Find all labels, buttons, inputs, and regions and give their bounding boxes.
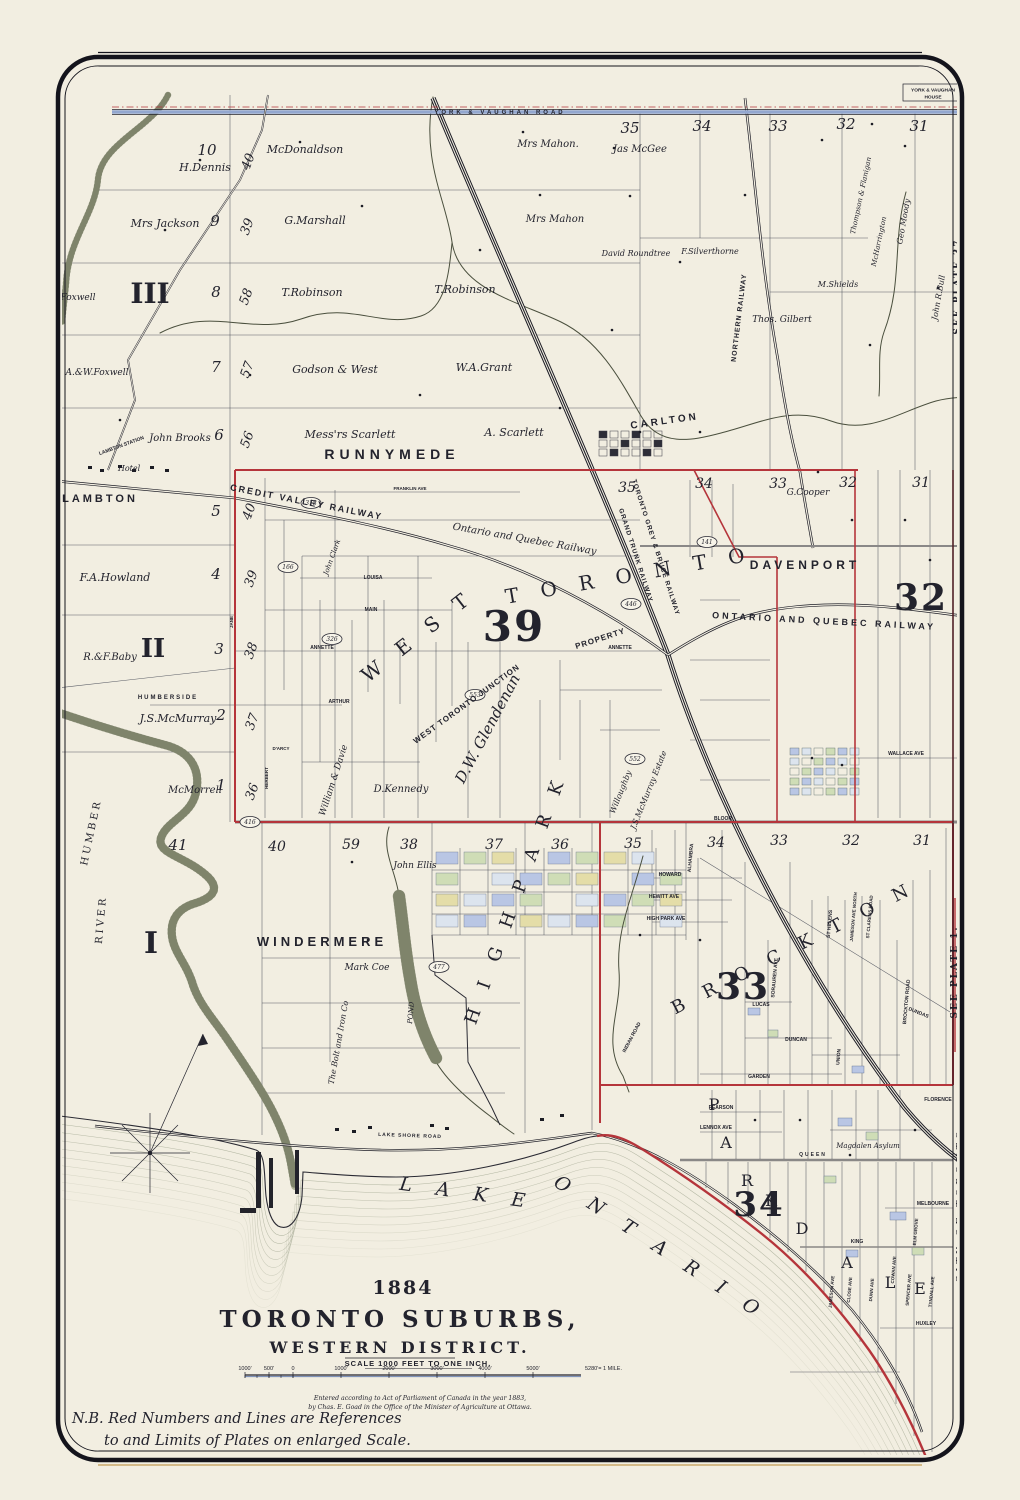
building-dot — [849, 1154, 852, 1157]
map-label: M.Shields — [817, 280, 858, 289]
building — [352, 1130, 356, 1133]
map-label: HERBERT — [264, 767, 269, 789]
map-label: John Brooks — [147, 433, 210, 444]
windermere-block — [632, 852, 654, 864]
map-label: 35 — [620, 119, 639, 137]
windermere-block — [604, 852, 626, 864]
map-label: YORK & VAUGHAN ROAD — [434, 110, 565, 116]
map-label: A — [840, 1253, 853, 1272]
map-label: Mess'rs Scarlett — [304, 428, 396, 441]
building-dot — [679, 261, 682, 264]
windermere-block — [576, 873, 598, 885]
map-label: 5 — [211, 502, 221, 520]
davenport-block — [838, 788, 847, 795]
map-label: 10 — [197, 141, 217, 159]
map-label: F.Silverthorne — [680, 247, 739, 256]
map-label: QUEEN — [799, 1152, 827, 1158]
building-dot — [841, 764, 844, 767]
windermere-block — [576, 852, 598, 864]
building-dot — [539, 194, 542, 197]
map-label: LAMBTON — [62, 493, 138, 505]
map-label: McDonaldson — [266, 143, 343, 156]
map-label: K — [765, 1191, 778, 1210]
building-dot — [929, 559, 932, 562]
map-label: JANE — [229, 616, 234, 628]
building-dot — [904, 145, 907, 148]
map-label: 37 — [485, 837, 503, 853]
map-label: 39 — [483, 602, 545, 651]
map-label: D.Kennedy — [373, 784, 429, 795]
map-label: DAVENPORT — [750, 558, 860, 572]
davenport-block — [802, 788, 811, 795]
map-label: LUCAS — [752, 1002, 770, 1008]
building-dot — [851, 519, 854, 522]
scale-tick-label: 1000' — [238, 1366, 251, 1372]
map-label: 31 — [913, 833, 931, 849]
map-label: A — [719, 1133, 732, 1152]
building — [150, 466, 154, 469]
windermere-block — [604, 894, 626, 906]
town-block — [824, 1176, 836, 1183]
carlton-block — [654, 440, 662, 447]
map-label: 32 — [839, 475, 857, 491]
building-dot — [754, 1119, 757, 1122]
windermere-block — [436, 873, 458, 885]
pier — [295, 1150, 299, 1194]
building-dot — [869, 344, 872, 347]
map-label: T.Robinson — [434, 283, 495, 296]
map-label: Magdalen Asylum — [835, 1142, 900, 1150]
davenport-block — [814, 768, 823, 775]
davenport-block — [802, 748, 811, 755]
map-label: 9 — [210, 212, 220, 230]
map-label: Godson & West — [292, 363, 378, 376]
building-dot — [119, 419, 122, 422]
map-label: 2 — [215, 706, 226, 724]
building-dot — [629, 195, 632, 198]
windermere-block — [464, 894, 486, 906]
map-label: KING — [851, 1239, 864, 1245]
windermere-block — [520, 915, 542, 927]
building-dot — [611, 329, 614, 332]
carlton-block — [621, 440, 629, 447]
carlton-block — [599, 431, 607, 438]
scale-tick-label: 3000' — [430, 1366, 443, 1372]
map-label: F.A.Howland — [79, 571, 151, 584]
map-label: 33 — [769, 476, 787, 492]
building-dot — [479, 249, 482, 252]
map-label: MELBOURNE — [917, 1201, 950, 1207]
windermere-block — [436, 915, 458, 927]
building-dot — [639, 431, 642, 434]
imprint-line2: by Chas. E. Goad in the Office of the Mi… — [308, 1404, 532, 1411]
map-label: J.S.McMurray — [138, 712, 218, 725]
building-dot — [351, 861, 354, 864]
map-label: P — [709, 1095, 720, 1114]
map-label: LENNOX AVE — [700, 1125, 733, 1131]
house-label-1: YORK & VAUGHAN — [911, 88, 955, 94]
building — [430, 1124, 434, 1127]
map-label: ANNETTE — [608, 645, 632, 651]
map-label: 32 — [836, 115, 855, 133]
davenport-block — [802, 778, 811, 785]
map-label: ARTHUR — [328, 699, 349, 705]
map-label: 4 — [210, 565, 221, 583]
map-label: FLORENCE — [924, 1097, 952, 1103]
toronto-suburbs-map: YORK & VAUGHAN HOUSE 4461663265535524164… — [0, 0, 1020, 1500]
map-label: 33 — [770, 833, 788, 849]
map-label: 41 — [167, 836, 187, 854]
building — [335, 1128, 339, 1131]
building-dot — [799, 1119, 802, 1122]
building — [165, 469, 169, 472]
map-label: 40 — [267, 839, 286, 855]
carlton-block — [610, 449, 618, 456]
map-label: I — [144, 926, 158, 961]
windermere-block — [464, 852, 486, 864]
lot-badge-number: 446 — [624, 601, 637, 608]
windermere-block — [548, 852, 570, 864]
town-block — [748, 1008, 760, 1015]
building-dot — [821, 139, 824, 142]
map-label: 3 — [214, 640, 224, 658]
map-label: Mrs Mahon — [525, 214, 584, 225]
map-label: Mark Coe — [344, 963, 390, 973]
davenport-block — [790, 788, 799, 795]
building-dot — [699, 939, 702, 942]
house-label-2: HOUSE — [924, 95, 942, 101]
map-label: D — [796, 1219, 809, 1238]
map-label: 8 — [211, 283, 221, 301]
map-label: 31 — [909, 117, 928, 135]
map-label: WALLACE AVE — [888, 751, 924, 757]
building-dot — [871, 123, 874, 126]
map-label: 1 — [216, 776, 226, 794]
map-label: David Roundtree — [601, 249, 671, 258]
map-label: Thos. Gilbert — [752, 315, 812, 325]
building — [540, 1118, 544, 1121]
building — [560, 1114, 564, 1117]
building-dot — [559, 407, 562, 410]
map-label: R.&F.Baby — [82, 652, 137, 663]
map-label: DUNCAN — [785, 1037, 807, 1043]
davenport-block — [790, 778, 799, 785]
map-label: WINDERMERE — [257, 934, 387, 949]
davenport-block — [838, 748, 847, 755]
lot-badge-number: 141 — [701, 539, 712, 546]
lot-badge-number: 416 — [243, 819, 256, 826]
windermere-block — [464, 915, 486, 927]
pier — [269, 1158, 273, 1208]
building-dot — [361, 205, 364, 208]
building-dot — [811, 757, 814, 760]
map-label: T.Robinson — [281, 286, 342, 299]
map-label: 33 — [768, 117, 787, 135]
carlton-block — [643, 449, 651, 456]
davenport-block — [790, 748, 799, 755]
map-label: 34 — [707, 835, 725, 851]
map-label: MAIN — [365, 607, 378, 613]
building-dot — [419, 394, 422, 397]
map-label: 31 — [912, 475, 930, 491]
map-label: W.A.Grant — [456, 361, 513, 374]
map-label: HUMBERSIDE — [138, 695, 198, 701]
town-block — [838, 1118, 852, 1126]
map-label: R — [741, 1171, 754, 1190]
map-label: GARDEN — [748, 1074, 770, 1080]
map-label: ANNETTE — [310, 645, 334, 651]
map-label: Hotel — [117, 464, 141, 473]
scale-tick-label: 4000' — [478, 1366, 491, 1372]
davenport-block — [826, 768, 835, 775]
map-label: RUNNYMEDE — [324, 446, 459, 462]
davenport-block — [826, 788, 835, 795]
building — [88, 466, 92, 469]
map-label: Mrs Jackson — [130, 217, 200, 230]
building-dot — [904, 519, 907, 522]
map-label: FRANKLIN AVE — [394, 486, 427, 491]
map-label: 32 — [842, 833, 860, 849]
map-label: HIGH PARK AVE — [647, 916, 686, 922]
davenport-block — [826, 748, 835, 755]
map-label: 6 — [214, 426, 224, 444]
building-dot — [817, 471, 820, 474]
davenport-block — [814, 758, 823, 765]
scale-tick-label: 0 — [291, 1366, 294, 1372]
lot-badge-number: 477 — [432, 964, 445, 971]
windermere-block — [436, 852, 458, 864]
map-label: 59 — [342, 837, 360, 853]
davenport-block — [802, 768, 811, 775]
town-block — [768, 1030, 778, 1037]
map-label: 38 — [400, 837, 418, 853]
map-label: D'ARCY — [272, 746, 289, 751]
windermere-block — [548, 915, 570, 927]
map-subtitle: WESTERN DISTRICT. — [268, 1338, 530, 1357]
map-label: HEWITT AVE — [649, 894, 680, 900]
map-label: HUXLEY — [916, 1321, 937, 1327]
lot-badge-number: 326 — [326, 636, 338, 643]
map-label: A.&W.Foxwell — [65, 368, 129, 378]
building-dot — [914, 1129, 917, 1132]
building — [445, 1127, 449, 1130]
map-label: 36 — [551, 837, 569, 853]
note-line1: N.B. Red Numbers and Lines are Reference… — [71, 1411, 402, 1427]
scale-tick-label: 5000' — [526, 1366, 539, 1372]
lot-badge-number: 552 — [629, 756, 641, 763]
davenport-block — [814, 778, 823, 785]
windermere-block — [576, 894, 598, 906]
york-vaughan-house: YORK & VAUGHAN HOUSE — [903, 84, 963, 101]
building-dot — [699, 431, 702, 434]
town-block — [866, 1132, 878, 1140]
lot-badge-number: 166 — [282, 564, 294, 571]
windermere-block — [576, 915, 598, 927]
pier — [256, 1152, 261, 1208]
scale-tick-label: 1000' — [334, 1366, 347, 1372]
imprint-line1: Entered according to Act of Parliament o… — [313, 1395, 526, 1402]
davenport-block — [826, 758, 835, 765]
map-label: G.Cooper — [787, 488, 831, 498]
map-label: 7 — [211, 358, 221, 376]
map-label: L — [885, 1273, 896, 1292]
scale-tick-label: 500' — [264, 1366, 274, 1372]
town-block — [852, 1066, 864, 1073]
map-label: HOWARD — [659, 872, 682, 878]
windermere-block — [492, 852, 514, 864]
map-label: BLOOR — [714, 816, 732, 822]
map-label: 34 — [695, 476, 713, 492]
map-label: McMorrell — [167, 785, 222, 796]
town-block — [912, 1247, 924, 1255]
map-label: LOUISA — [364, 575, 383, 581]
map-label: G.Marshall — [284, 214, 346, 227]
map-title: TORONTO SUBURBS, — [220, 1306, 581, 1333]
scale-label: SCALE 1000 FEET TO ONE INCH. — [345, 1359, 492, 1368]
scale-tick-label: 2000' — [382, 1366, 395, 1372]
map-label: A. Scarlett — [483, 426, 544, 439]
town-block — [890, 1212, 906, 1220]
davenport-block — [838, 778, 847, 785]
map-label: 35 — [624, 836, 642, 852]
map-canvas: YORK & VAUGHAN HOUSE 4461663265535524164… — [0, 0, 1020, 1500]
map-label: Mrs Mahon. — [516, 139, 579, 150]
map-label: H.Dennis — [178, 161, 231, 174]
windermere-block — [436, 894, 458, 906]
davenport-block — [790, 758, 799, 765]
pier — [240, 1208, 256, 1213]
building — [368, 1126, 372, 1129]
building — [100, 469, 104, 472]
map-label: 34 — [692, 117, 711, 135]
map-label: 32 — [894, 577, 948, 619]
building-dot — [522, 131, 525, 134]
note-line2: to and Limits of Plates on enlarged Scal… — [104, 1433, 411, 1449]
map-label: Jas McGee — [611, 144, 667, 155]
map-label: John Ellis — [391, 861, 437, 871]
map-year: 1884 — [373, 1277, 434, 1299]
scale-tick-label: 5280'= 1 MILE. — [585, 1366, 622, 1372]
map-label: II — [141, 634, 165, 664]
building-dot — [744, 194, 747, 197]
map-label: III — [130, 277, 169, 310]
map-label: E — [914, 1279, 926, 1298]
building-dot — [639, 934, 642, 937]
windermere-block — [548, 873, 570, 885]
